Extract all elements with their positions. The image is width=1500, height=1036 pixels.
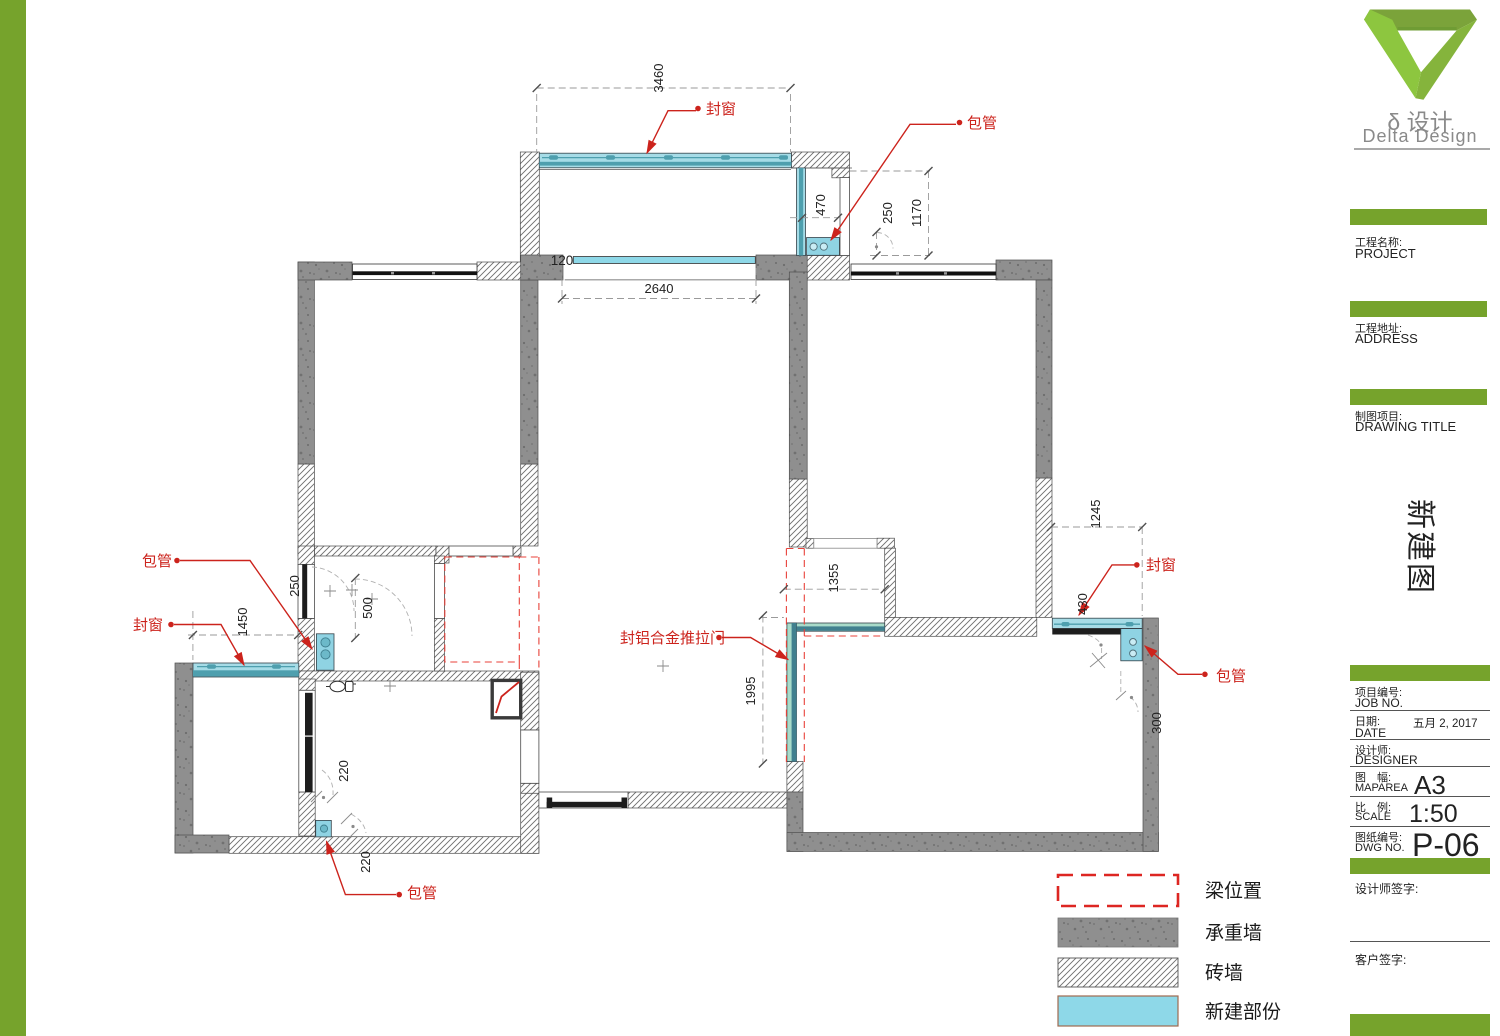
svg-text:包管: 包管 (967, 115, 997, 132)
svg-text:220: 220 (358, 851, 373, 873)
svg-text:1245: 1245 (1088, 500, 1103, 529)
svg-text:250: 250 (287, 575, 302, 597)
svg-text:1995: 1995 (743, 677, 758, 706)
svg-text:承重墙: 承重墙 (1205, 922, 1262, 944)
svg-text:3460: 3460 (651, 64, 666, 93)
svg-text:300: 300 (1149, 712, 1164, 734)
svg-text:封铝合金推拉门: 封铝合金推拉门 (620, 630, 725, 647)
svg-text:250: 250 (880, 202, 895, 224)
svg-text:1170: 1170 (909, 199, 924, 227)
svg-text:500: 500 (360, 597, 375, 619)
svg-text:包管: 包管 (142, 553, 172, 570)
svg-text:封窗: 封窗 (1146, 556, 1176, 574)
svg-text:220: 220 (336, 760, 351, 782)
svg-text:470: 470 (813, 194, 828, 216)
svg-text:新建部份: 新建部份 (1205, 1001, 1281, 1023)
svg-text:封窗: 封窗 (706, 100, 736, 118)
svg-text:包管: 包管 (407, 885, 437, 902)
svg-text:1355: 1355 (826, 564, 841, 593)
svg-text:1450: 1450 (235, 608, 250, 637)
svg-text:2640: 2640 (645, 281, 674, 296)
svg-text:封窗: 封窗 (133, 616, 163, 634)
svg-text:梁位置: 梁位置 (1205, 880, 1262, 902)
svg-text:砖墙: 砖墙 (1205, 962, 1243, 984)
svg-text:包管: 包管 (1216, 668, 1246, 685)
svg-text:430: 430 (1075, 593, 1090, 615)
svg-text:120: 120 (551, 253, 574, 268)
